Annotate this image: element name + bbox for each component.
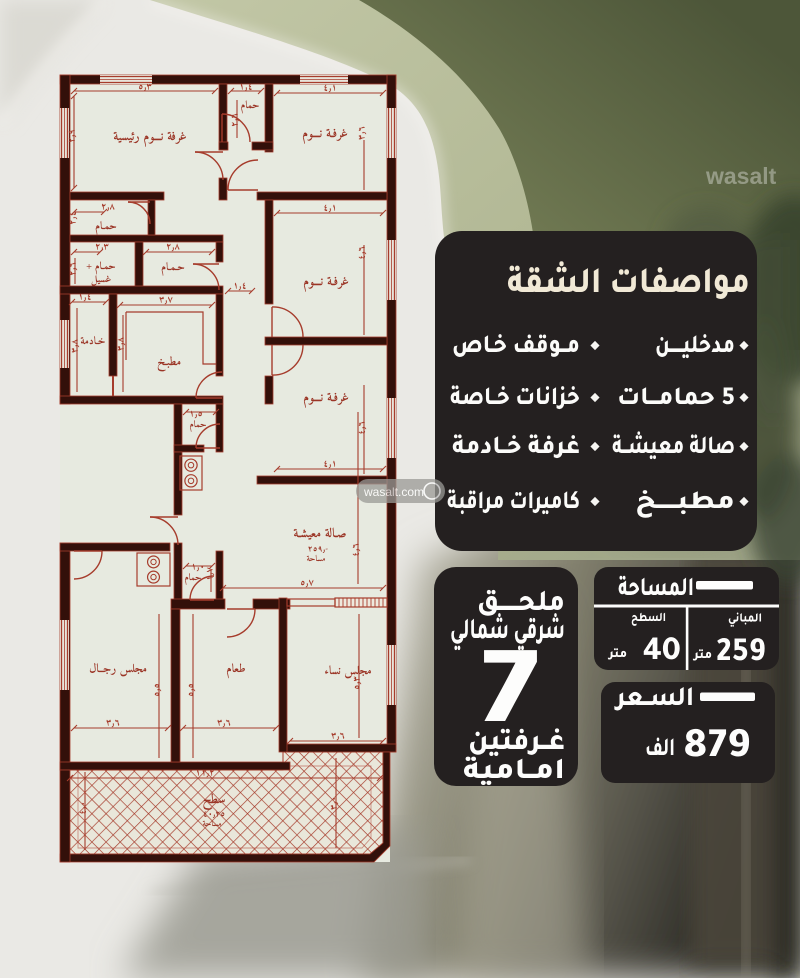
svg-text:wasalt.com: wasalt.com (363, 485, 424, 499)
svg-text:wasalt: wasalt (705, 163, 777, 189)
